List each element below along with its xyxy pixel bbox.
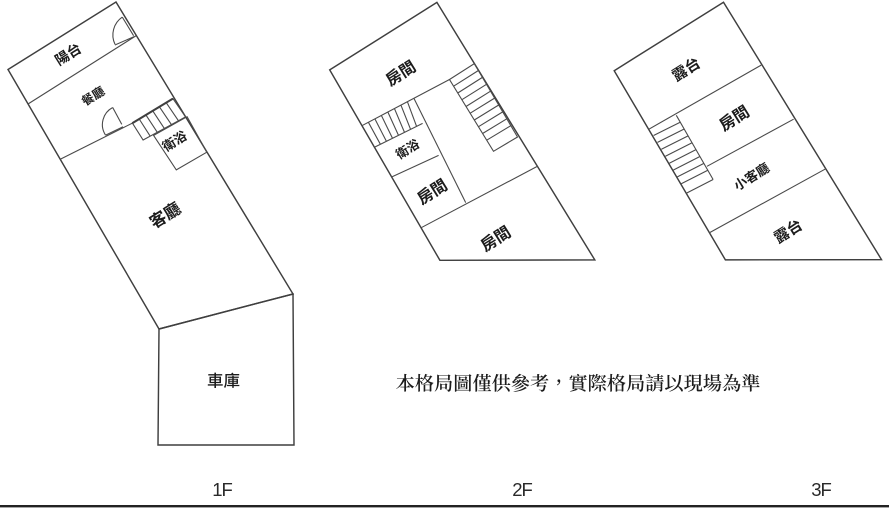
svg-text:3F: 3F <box>811 479 831 500</box>
svg-text:2F: 2F <box>512 479 532 500</box>
svg-text:1F: 1F <box>212 479 232 500</box>
